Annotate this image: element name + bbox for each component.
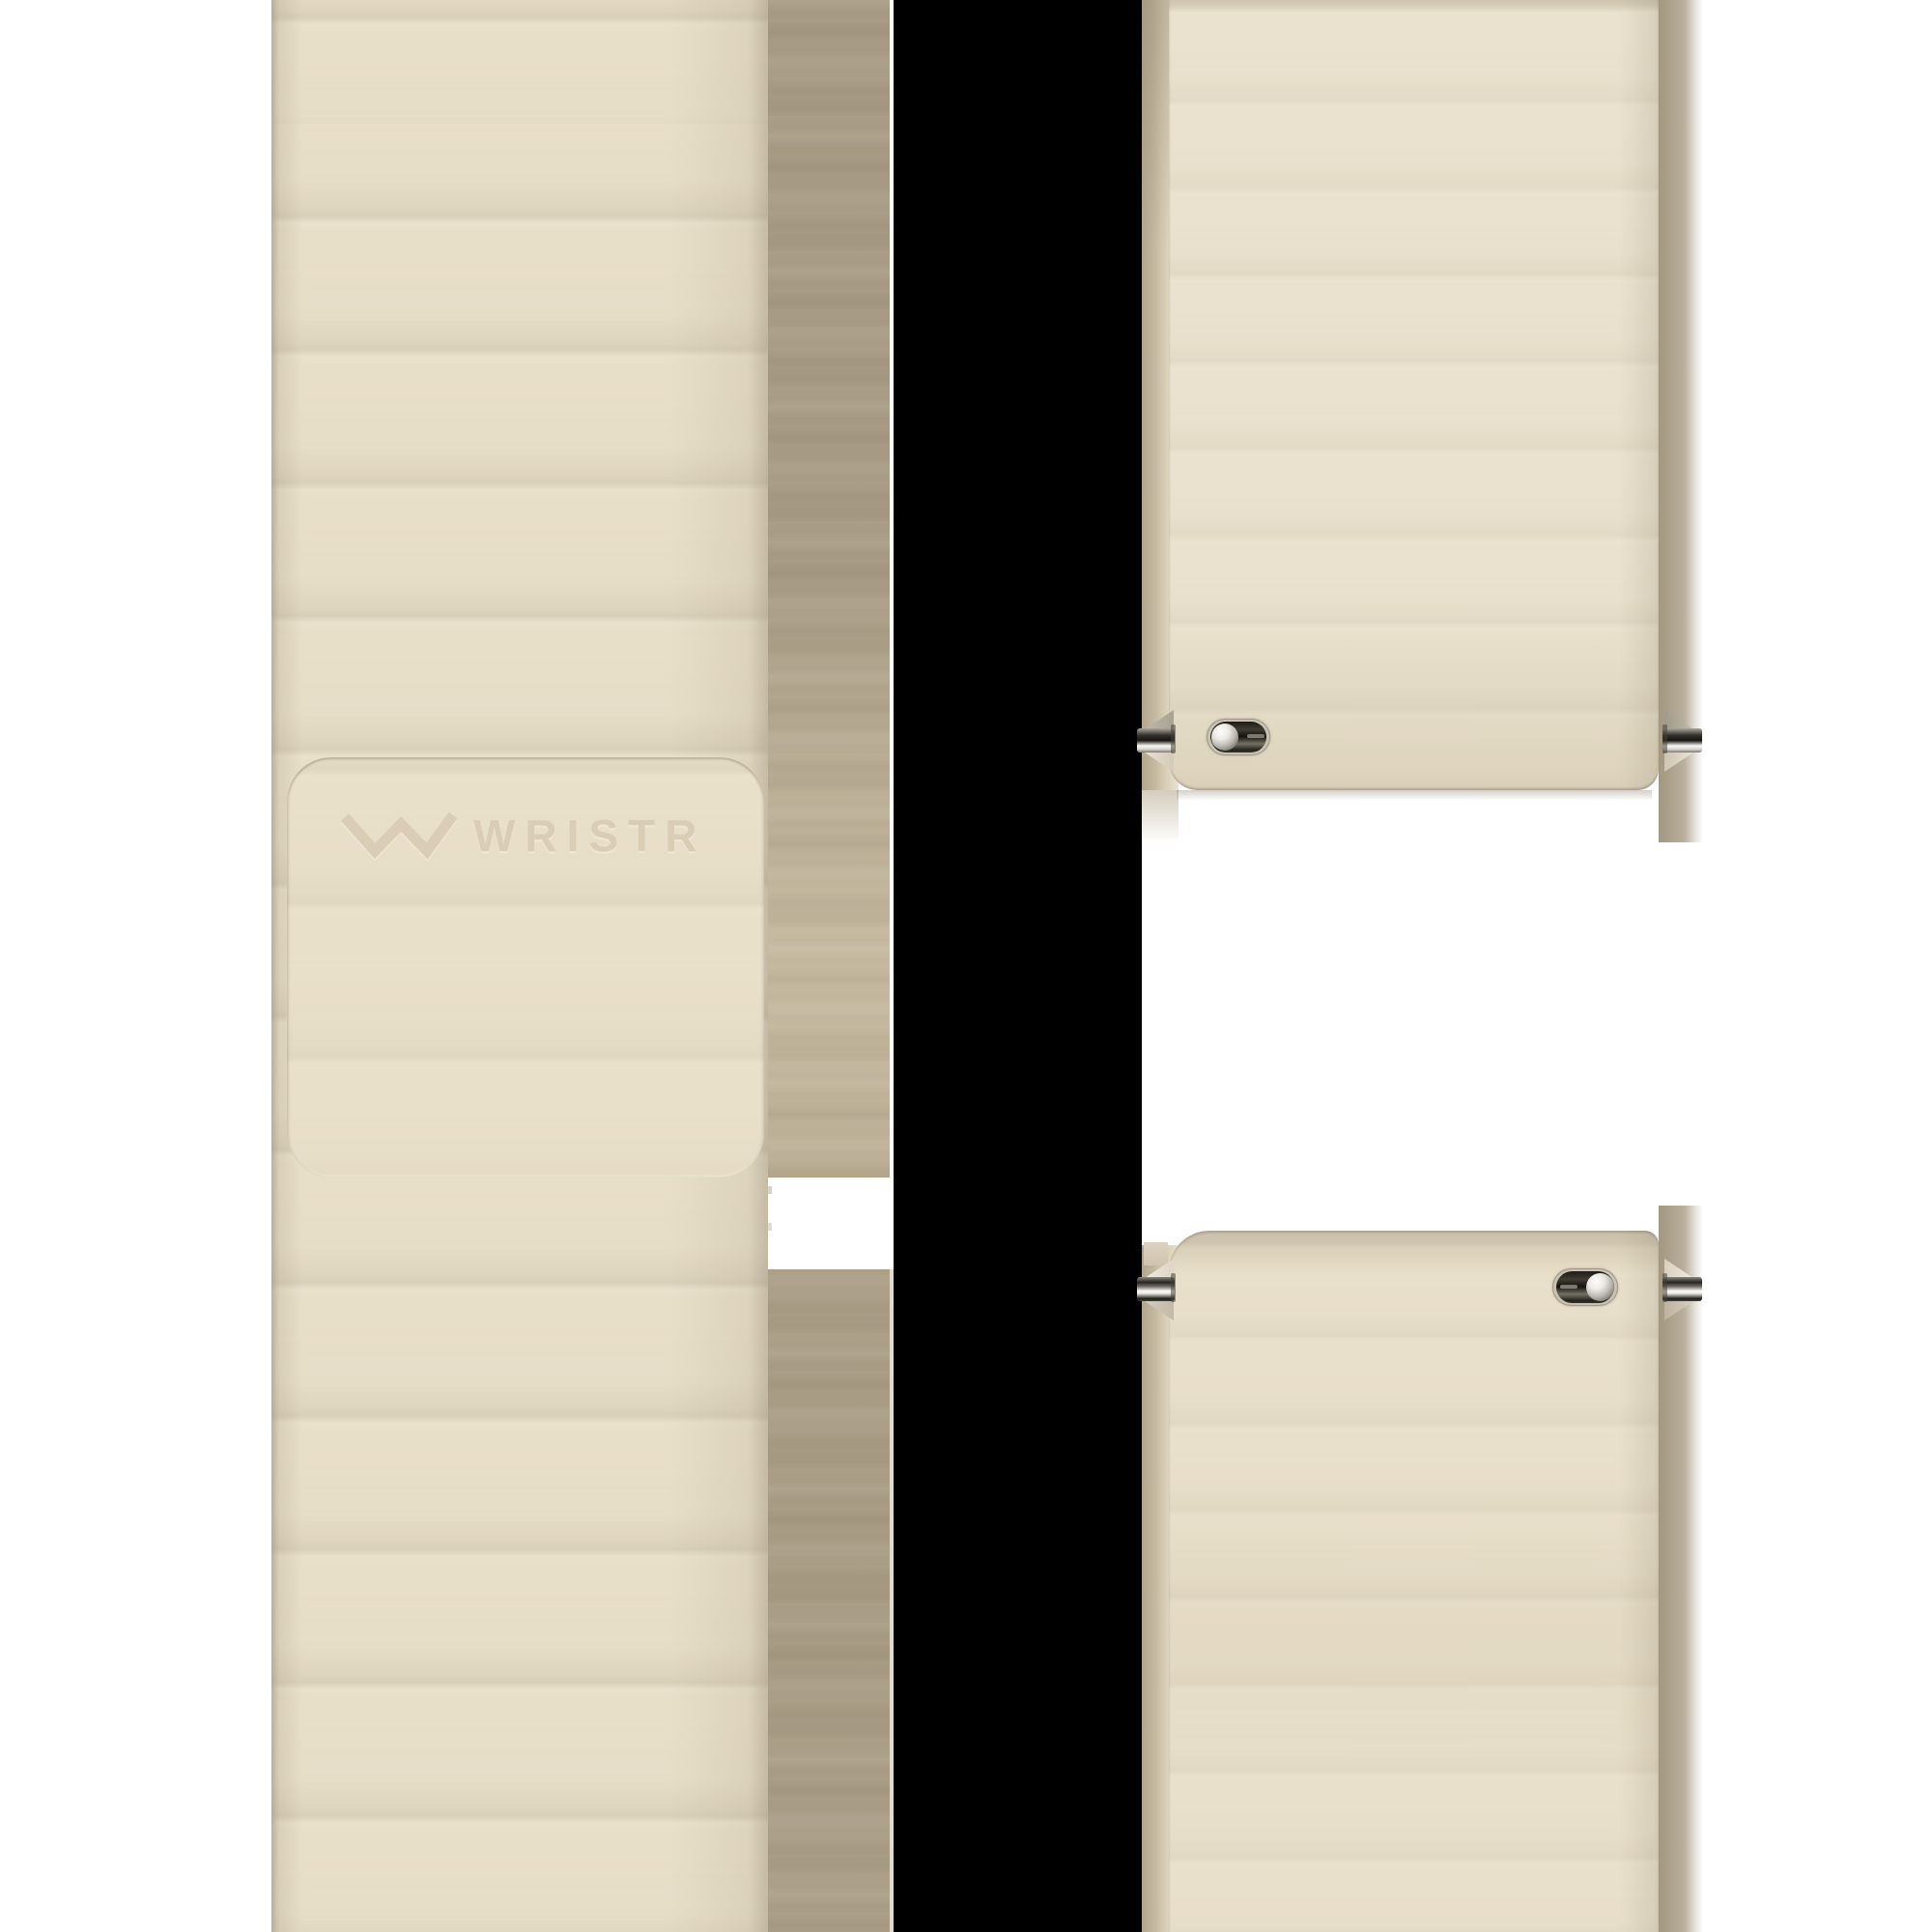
svg-text:WRISTR: WRISTR xyxy=(473,810,706,861)
